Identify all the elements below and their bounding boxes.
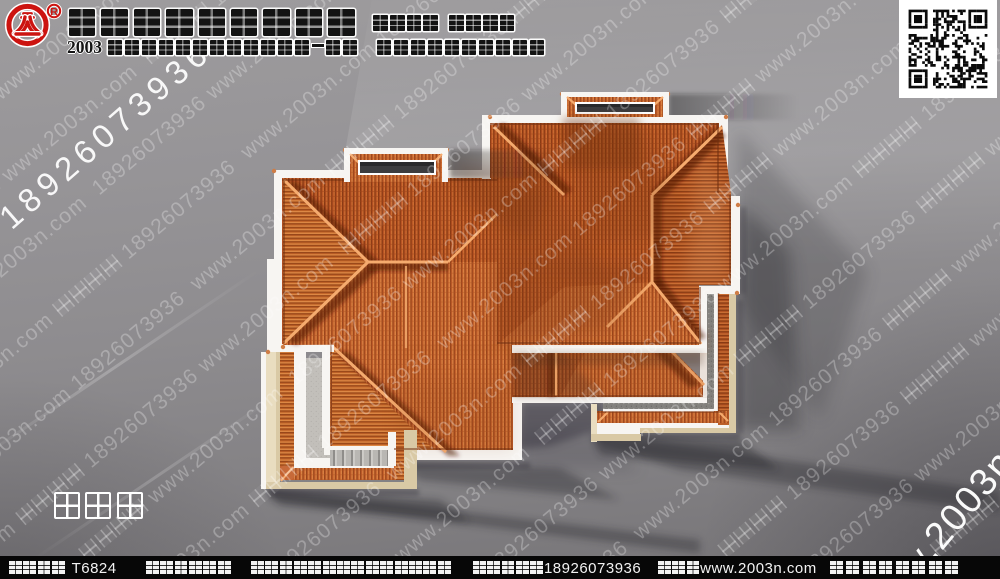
svg-text:R: R xyxy=(50,6,58,18)
